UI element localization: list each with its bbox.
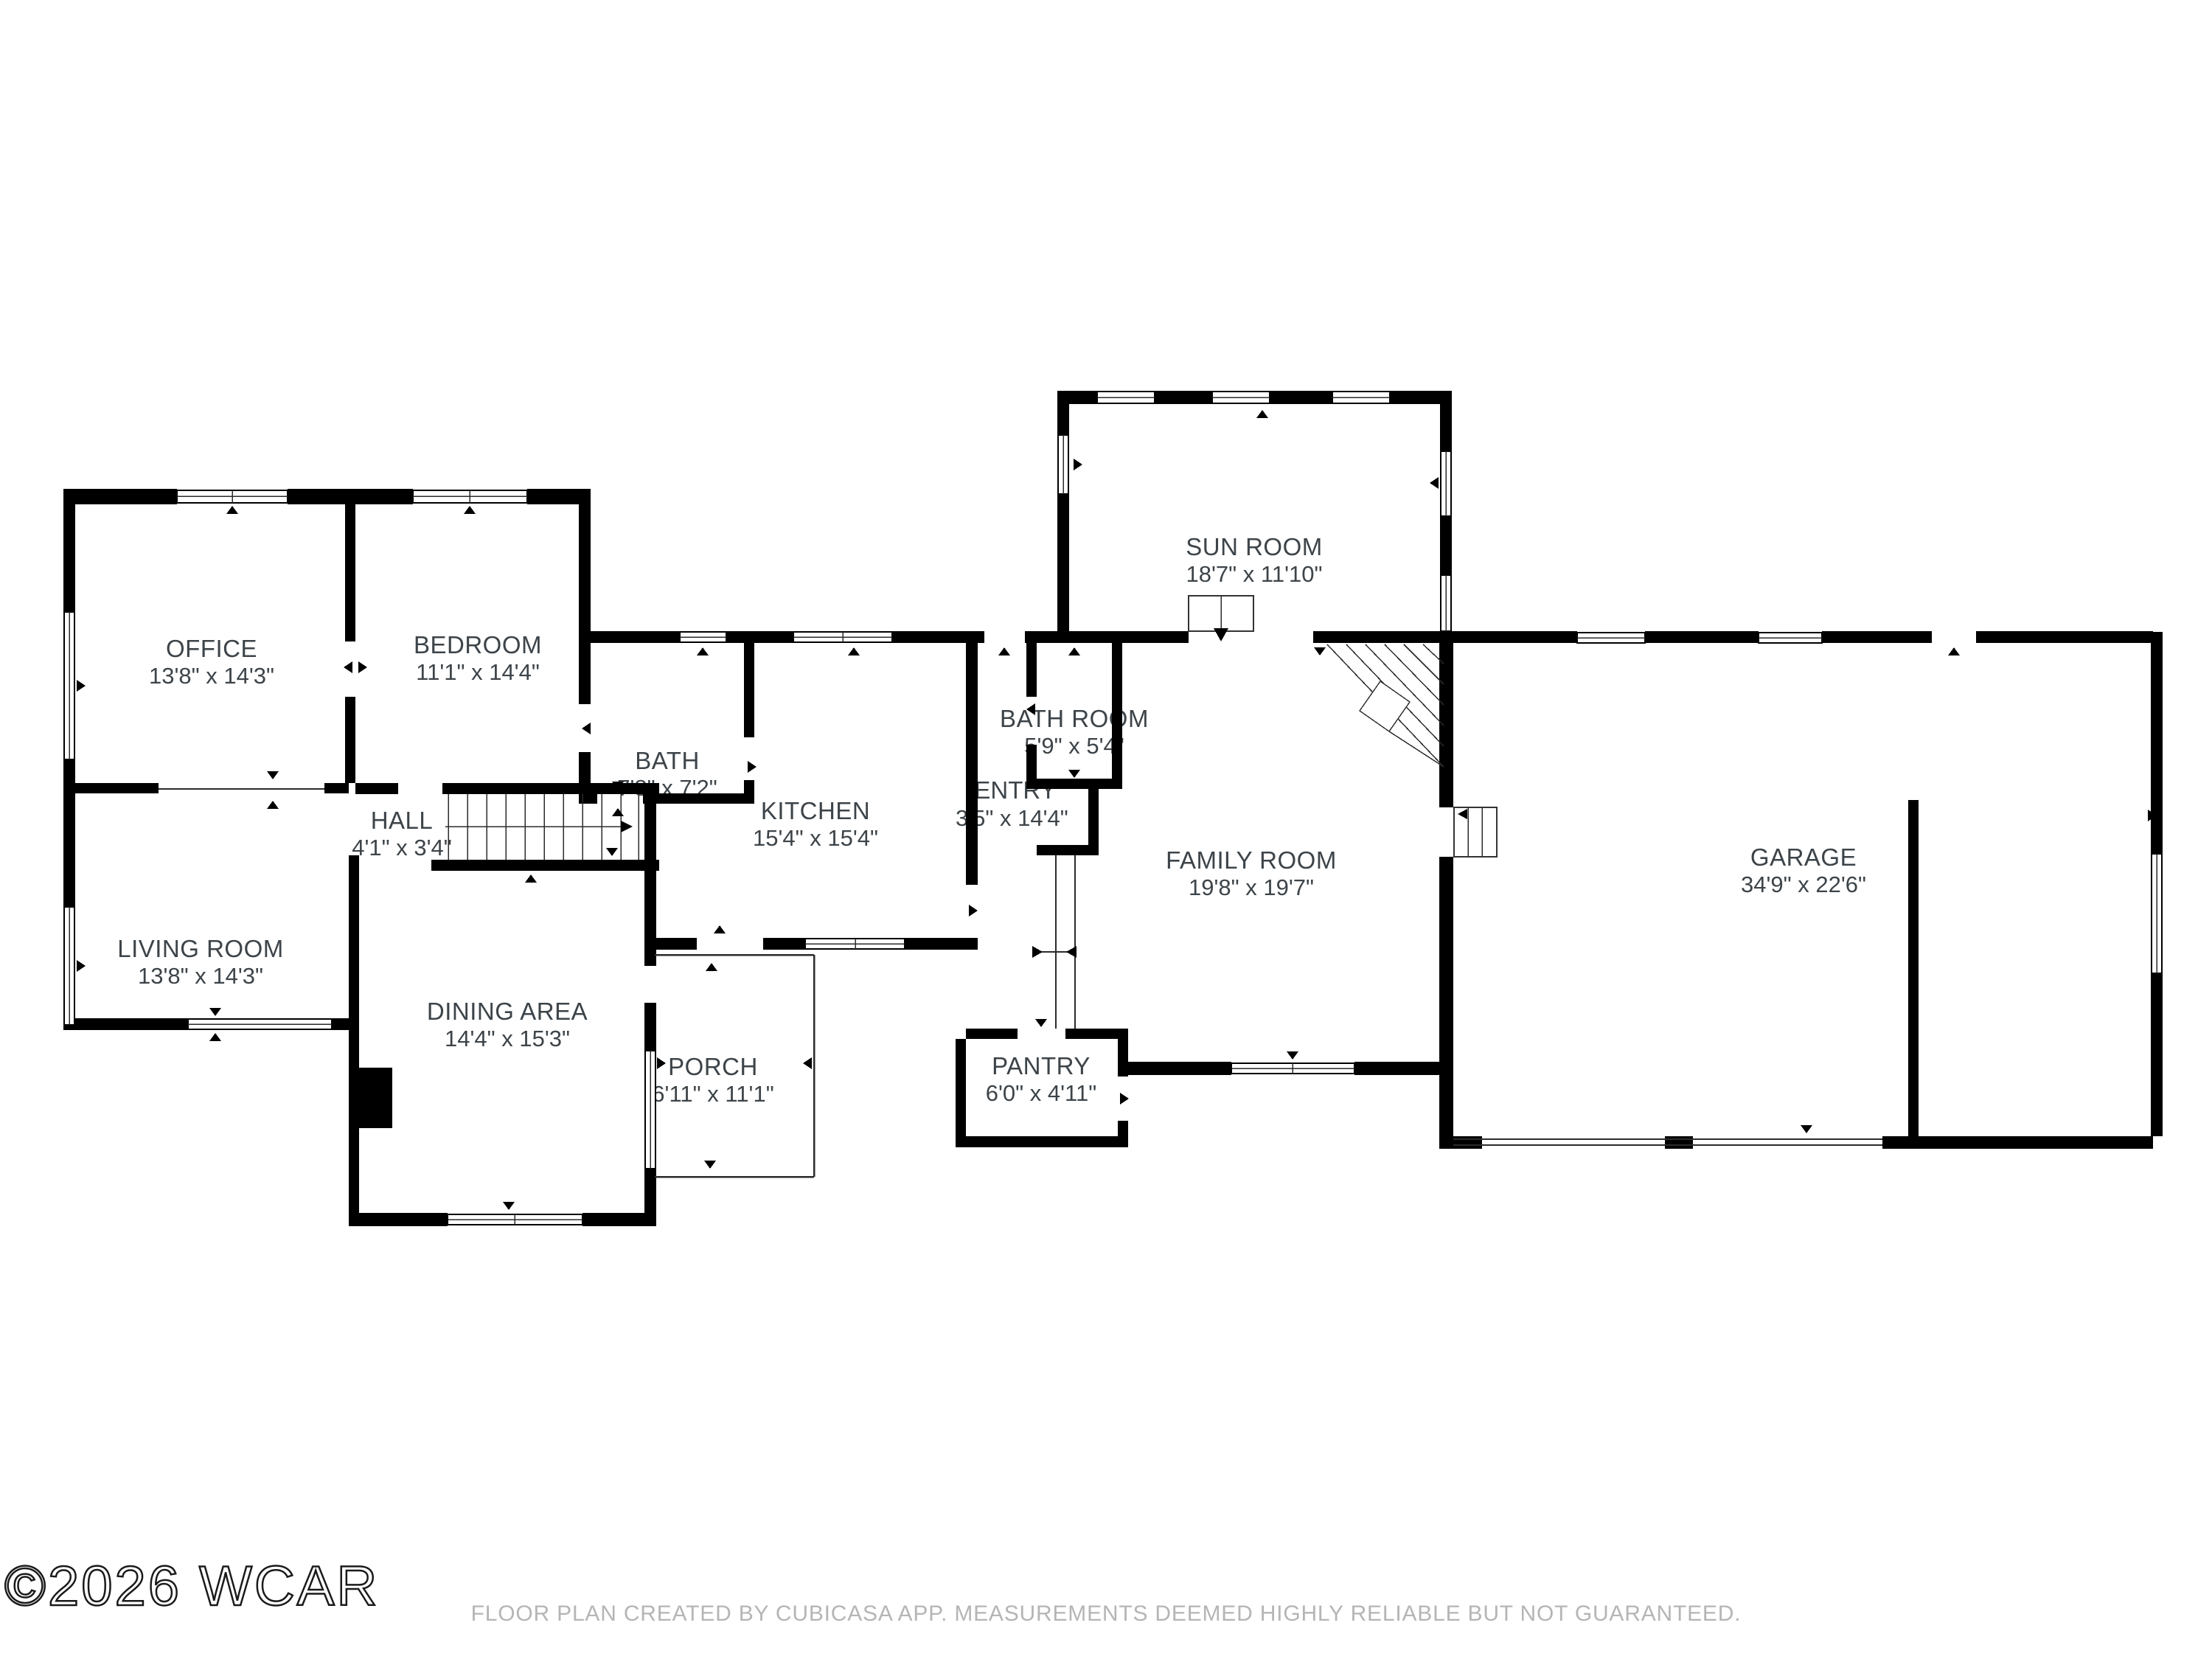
- room-dims: 7'8" x 7'2": [617, 774, 717, 801]
- entry-passage-lines: [1038, 855, 1075, 1029]
- room-dims: 5'9" x 5'4": [1000, 732, 1149, 759]
- room-dims: 19'8" x 19'7": [1166, 874, 1337, 901]
- room-dims: 13'8" x 14'3": [117, 962, 284, 990]
- room-name: FAMILY ROOM: [1166, 846, 1337, 874]
- room-name: LIVING ROOM: [117, 935, 284, 962]
- room-dims: 4'1" x 3'4": [352, 834, 452, 861]
- room-name: SUN ROOM: [1186, 533, 1323, 560]
- room-name: GARAGE: [1741, 844, 1866, 871]
- footer-disclaimer: FLOOR PLAN CREATED BY CUBICASA APP. MEAS…: [0, 1601, 2212, 1627]
- door-arrow: [1032, 946, 1043, 958]
- winder-stairs-icon: [1327, 644, 1444, 767]
- garage-door-lines: [1453, 1139, 1882, 1145]
- sunroom-door-icon: [1189, 596, 1253, 641]
- room-name: PORCH: [652, 1053, 773, 1080]
- room-label-family-room: FAMILY ROOM 19'8" x 19'7": [1166, 846, 1337, 901]
- room-label-pantry: PANTRY 6'0" x 4'11": [986, 1052, 1096, 1107]
- room-name: BEDROOM: [414, 631, 542, 658]
- room-name: HALL: [352, 807, 452, 834]
- room-dims: 34'9" x 22'6": [1741, 871, 1866, 898]
- room-label-hall: HALL 4'1" x 3'4": [352, 807, 452, 861]
- room-dims: 6'0" x 4'11": [986, 1079, 1096, 1107]
- room-label-living-room: LIVING ROOM 13'8" x 14'3": [117, 935, 284, 990]
- room-dims: 11'1" x 14'4": [414, 658, 542, 686]
- room-name: DINING AREA: [427, 998, 588, 1025]
- room-dims: 14'4" x 15'3": [427, 1025, 588, 1052]
- room-label-bath-room: BATH ROOM 5'9" x 5'4": [1000, 705, 1149, 759]
- room-dims: 13'8" x 14'3": [149, 662, 274, 689]
- room-dims: 18'7" x 11'10": [1186, 560, 1323, 588]
- room-label-garage: GARAGE 34'9" x 22'6": [1741, 844, 1866, 898]
- room-dims: 15'4" x 15'4": [753, 824, 878, 852]
- room-label-sun-room: SUN ROOM 18'7" x 11'10": [1186, 533, 1323, 588]
- room-label-porch: PORCH 6'11" x 11'1": [652, 1053, 773, 1107]
- room-label-entry: ENTRY: [974, 776, 1056, 804]
- stair-direction-arrow: [621, 821, 633, 832]
- room-label-dining-area: DINING AREA 14'4" x 15'3": [427, 998, 588, 1052]
- room-dims-entry: 3'5" x 14'4": [956, 804, 1068, 832]
- room-label-kitchen: KITCHEN 15'4" x 15'4": [753, 797, 878, 852]
- room-label-bedroom: BEDROOM 11'1" x 14'4": [414, 631, 542, 686]
- room-name: KITCHEN: [753, 797, 878, 824]
- room-name: BATH ROOM: [1000, 705, 1149, 732]
- room-name: OFFICE: [149, 635, 274, 662]
- room-name: PANTRY: [986, 1052, 1096, 1079]
- floorplan-graphics: [0, 0, 2212, 1659]
- room-name: BATH: [617, 747, 717, 774]
- staircase-icon: [445, 794, 639, 860]
- garage-steps-icon: [1454, 807, 1497, 857]
- room-dims: 6'11" x 11'1": [652, 1080, 773, 1107]
- floor-plan-page: OFFICE 13'8" x 14'3" BEDROOM 11'1" x 14'…: [0, 0, 2212, 1659]
- door-arrow: [1066, 946, 1077, 958]
- room-label-bath: BATH 7'8" x 7'2": [617, 747, 717, 801]
- room-label-office: OFFICE 13'8" x 14'3": [149, 635, 274, 689]
